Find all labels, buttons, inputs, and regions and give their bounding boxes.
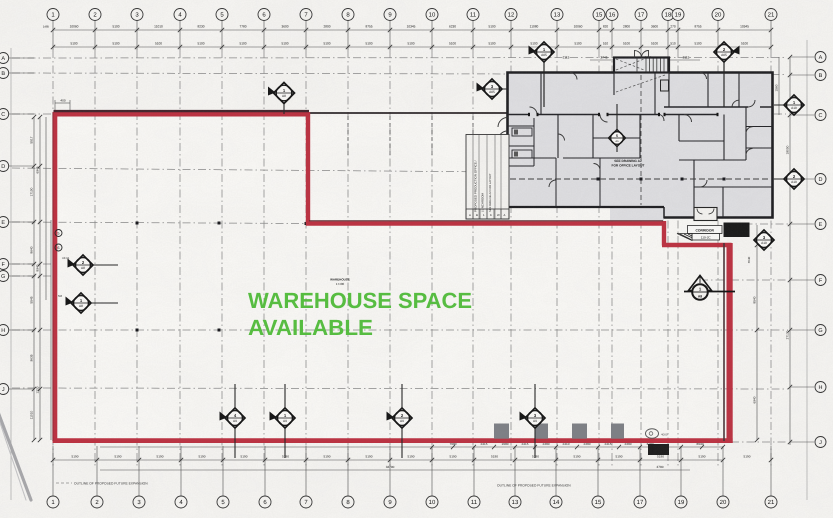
- svg-text:A9: A9: [283, 419, 287, 423]
- svg-text:5190: 5190: [241, 455, 248, 459]
- svg-text:11: 11: [470, 12, 477, 19]
- svg-text:1220: 1220: [36, 386, 40, 393]
- svg-text:AF.01: AF.01: [62, 256, 70, 260]
- svg-text:WAREHOUSE SPACE: WAREHOUSE SPACE: [248, 288, 472, 313]
- svg-text:17100: 17100: [30, 187, 34, 196]
- svg-text:J: J: [819, 440, 822, 446]
- svg-text:W: W: [497, 213, 500, 217]
- svg-text:SEE DWG No A2 FOR LAYOUT: SEE DWG No A2 FOR LAYOUT: [489, 173, 492, 212]
- svg-text:5190: 5190: [282, 455, 289, 459]
- svg-text:10345: 10345: [407, 25, 416, 29]
- svg-text:5100: 5100: [488, 25, 495, 29]
- svg-text:5190: 5190: [157, 455, 164, 459]
- svg-text:11010: 11010: [30, 411, 34, 420]
- svg-text:5100: 5100: [155, 42, 162, 46]
- svg-text:10060: 10060: [70, 25, 79, 29]
- svg-text:B: B: [1, 71, 5, 77]
- svg-text:8540: 8540: [753, 296, 757, 303]
- svg-text:5190: 5190: [491, 455, 498, 459]
- svg-text:17400: 17400: [336, 282, 345, 286]
- svg-text:18000: 18000: [786, 145, 790, 154]
- svg-text:5517: 5517: [30, 136, 34, 143]
- svg-text:10060: 10060: [574, 25, 583, 29]
- svg-text:3600: 3600: [281, 25, 288, 29]
- svg-text:A: A: [469, 213, 471, 217]
- svg-text:5100: 5100: [694, 42, 701, 46]
- svg-text:17: 17: [638, 12, 645, 19]
- svg-text:8940: 8940: [36, 264, 40, 271]
- svg-text:510: 510: [603, 42, 609, 46]
- svg-text:A6: A6: [615, 140, 619, 143]
- svg-text:2800: 2800: [623, 25, 630, 29]
- svg-text:5: 5: [58, 232, 60, 236]
- svg-text:5190: 5190: [616, 455, 623, 459]
- svg-text:2800: 2800: [323, 25, 330, 29]
- svg-text:D: D: [1, 164, 5, 170]
- svg-text:J: J: [2, 387, 5, 393]
- svg-text:5100: 5100: [574, 42, 581, 46]
- svg-text:5100: 5100: [112, 25, 119, 29]
- svg-text:11080: 11080: [530, 25, 539, 29]
- svg-text:E: E: [819, 222, 823, 228]
- svg-text:5100: 5100: [323, 42, 330, 46]
- svg-text:27130: 27130: [786, 330, 790, 339]
- svg-text:8640: 8640: [30, 246, 34, 253]
- svg-text:17: 17: [637, 499, 644, 506]
- svg-text:16: 16: [609, 12, 616, 19]
- svg-text:H: H: [1, 328, 5, 334]
- svg-text:13: 13: [512, 499, 519, 506]
- svg-text:6230: 6230: [449, 25, 456, 29]
- svg-text:5100: 5100: [112, 42, 119, 46]
- svg-text:5100: 5100: [281, 42, 288, 46]
- svg-text:21: 21: [768, 12, 775, 19]
- svg-text:110-2C: 110-2C: [701, 236, 712, 240]
- svg-text:5100: 5100: [365, 42, 372, 46]
- svg-text:AVAILABLE: AVAILABLE: [248, 315, 373, 340]
- svg-text:D: D: [819, 177, 823, 183]
- svg-text:5545: 5545: [30, 296, 34, 303]
- svg-text:5190: 5190: [115, 455, 122, 459]
- svg-text:1485: 1485: [43, 25, 50, 29]
- svg-text:2115: 2115: [563, 56, 570, 60]
- svg-text:2745: 2745: [600, 56, 607, 60]
- svg-text:270: 270: [670, 25, 676, 29]
- svg-text:5190: 5190: [324, 455, 331, 459]
- svg-text:6540: 6540: [747, 256, 751, 263]
- svg-text:12: 12: [508, 12, 515, 19]
- svg-text:A8: A8: [698, 294, 702, 298]
- svg-text:11010: 11010: [154, 25, 163, 29]
- svg-text:5100: 5100: [651, 42, 658, 46]
- svg-text:33700: 33700: [386, 465, 395, 469]
- svg-text:C: C: [1, 112, 5, 118]
- svg-text:20: 20: [715, 12, 722, 19]
- svg-text:A10: A10: [791, 180, 797, 184]
- svg-text:B: B: [476, 213, 478, 217]
- svg-text:5100: 5100: [530, 42, 537, 46]
- svg-text:10345: 10345: [740, 25, 749, 29]
- svg-text:A05: A05: [489, 90, 495, 94]
- svg-text:8755: 8755: [365, 25, 372, 29]
- svg-text:5M: 5M: [58, 294, 63, 298]
- svg-text:5190: 5190: [199, 455, 206, 459]
- svg-text:19: 19: [675, 12, 682, 19]
- svg-text:5100: 5100: [407, 42, 414, 46]
- svg-text:8755: 8755: [694, 25, 701, 29]
- svg-text:9635: 9635: [30, 354, 34, 361]
- svg-text:820: 820: [603, 25, 609, 29]
- svg-text:5: 5: [616, 134, 618, 138]
- svg-text:15: 15: [596, 12, 603, 19]
- svg-text:5190: 5190: [408, 455, 415, 459]
- svg-text:A9: A9: [533, 419, 537, 423]
- svg-text:A: A: [504, 213, 506, 217]
- svg-text:11: 11: [471, 499, 478, 506]
- svg-text:A8: A8: [282, 94, 286, 98]
- svg-text:A05: A05: [721, 53, 727, 57]
- svg-text:G: G: [1, 274, 5, 280]
- svg-text:5100: 5100: [623, 42, 630, 46]
- svg-text:A8: A8: [81, 266, 85, 270]
- svg-text:5190: 5190: [744, 455, 751, 459]
- svg-text:510: 510: [670, 42, 676, 46]
- svg-text:PROPOSED PRODUCTION OFFICE /: PROPOSED PRODUCTION OFFICE /: [474, 160, 478, 212]
- svg-text:A9: A9: [233, 419, 237, 423]
- svg-text:K: K: [490, 213, 492, 217]
- svg-text:5190: 5190: [532, 455, 539, 459]
- svg-text:A05: A05: [541, 53, 547, 57]
- svg-text:5100: 5100: [449, 42, 456, 46]
- svg-text:5100: 5100: [741, 42, 748, 46]
- svg-text:OUTLINE OF PROPOSED FUTURE EXP: OUTLINE OF PROPOSED FUTURE EXPANSION: [497, 483, 571, 487]
- svg-text:5190: 5190: [72, 455, 79, 459]
- svg-text:FOR OFFICE LAYOUT: FOR OFFICE LAYOUT: [612, 164, 645, 168]
- svg-text:8230: 8230: [197, 25, 204, 29]
- svg-text:A8: A8: [79, 304, 83, 308]
- svg-text:5190: 5190: [450, 455, 457, 459]
- svg-text:A9: A9: [400, 419, 404, 423]
- svg-text:3780: 3780: [657, 465, 664, 469]
- svg-text:B: B: [819, 73, 823, 79]
- svg-text:3600: 3600: [651, 25, 658, 29]
- svg-text:1560: 1560: [775, 84, 779, 91]
- svg-text:20: 20: [720, 499, 727, 506]
- svg-text:E: E: [1, 220, 5, 226]
- svg-text:A: A: [819, 55, 823, 61]
- svg-text:5100: 5100: [239, 42, 246, 46]
- svg-text:21: 21: [768, 499, 775, 506]
- svg-text:400: 400: [60, 99, 65, 103]
- svg-text:18: 18: [665, 12, 672, 19]
- svg-text:5190: 5190: [366, 455, 373, 459]
- svg-text:H: H: [819, 385, 823, 391]
- svg-text:A10: A10: [761, 241, 767, 245]
- svg-text:5190: 5190: [657, 455, 664, 459]
- svg-text:6940: 6940: [753, 396, 757, 403]
- svg-text:6945: 6945: [36, 166, 40, 173]
- svg-text:4000: 4000: [661, 433, 668, 437]
- svg-text:10: 10: [429, 499, 436, 506]
- svg-text:5190: 5190: [574, 455, 581, 459]
- svg-text:19: 19: [678, 499, 685, 506]
- svg-text:7780: 7780: [239, 25, 246, 29]
- svg-text:5100: 5100: [197, 42, 204, 46]
- svg-text:SEE DRAWING A2: SEE DRAWING A2: [614, 159, 642, 163]
- svg-text:10: 10: [429, 12, 436, 19]
- svg-text:OUTLINE OF PROPOSED FUTURE EXP: OUTLINE OF PROPOSED FUTURE EXPANSION: [74, 481, 148, 485]
- svg-text:G: G: [818, 328, 822, 334]
- svg-text:13: 13: [554, 12, 561, 19]
- svg-text:14: 14: [553, 499, 560, 506]
- svg-text:2115: 2115: [683, 56, 690, 60]
- svg-text:CORRIDOR: CORRIDOR: [695, 228, 714, 232]
- svg-text:5100: 5100: [488, 42, 495, 46]
- svg-text:C: C: [819, 113, 823, 119]
- svg-text:A: A: [1, 56, 5, 62]
- svg-text:5190: 5190: [699, 455, 706, 459]
- svg-text:6: 6: [58, 246, 60, 250]
- svg-text:15: 15: [595, 499, 602, 506]
- svg-text:A10: A10: [791, 106, 797, 110]
- svg-text:5100: 5100: [70, 42, 77, 46]
